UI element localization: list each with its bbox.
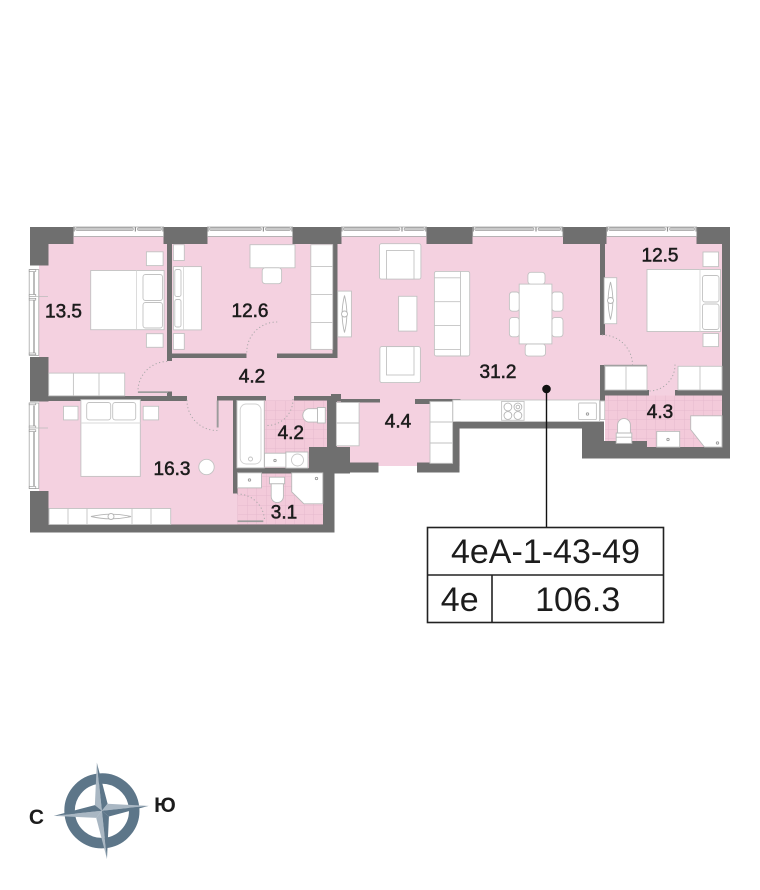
svg-text:3.1: 3.1 [271,503,297,524]
svg-text:4.2: 4.2 [278,423,304,444]
svg-text:16.3: 16.3 [154,459,191,480]
svg-text:31.2: 31.2 [480,362,517,383]
svg-text:С: С [29,806,44,829]
svg-text:4.4: 4.4 [385,412,412,433]
svg-text:4e: 4e [441,581,479,619]
svg-text:4.2: 4.2 [239,367,265,388]
svg-text:Ю: Ю [154,794,176,817]
svg-text:106.3: 106.3 [535,581,620,619]
svg-text:12.5: 12.5 [642,246,679,267]
svg-text:13.5: 13.5 [45,302,82,323]
svg-text:12.6: 12.6 [232,301,269,322]
svg-text:4eA-1-43-49: 4eA-1-43-49 [451,533,640,571]
svg-text:4.3: 4.3 [647,402,673,423]
